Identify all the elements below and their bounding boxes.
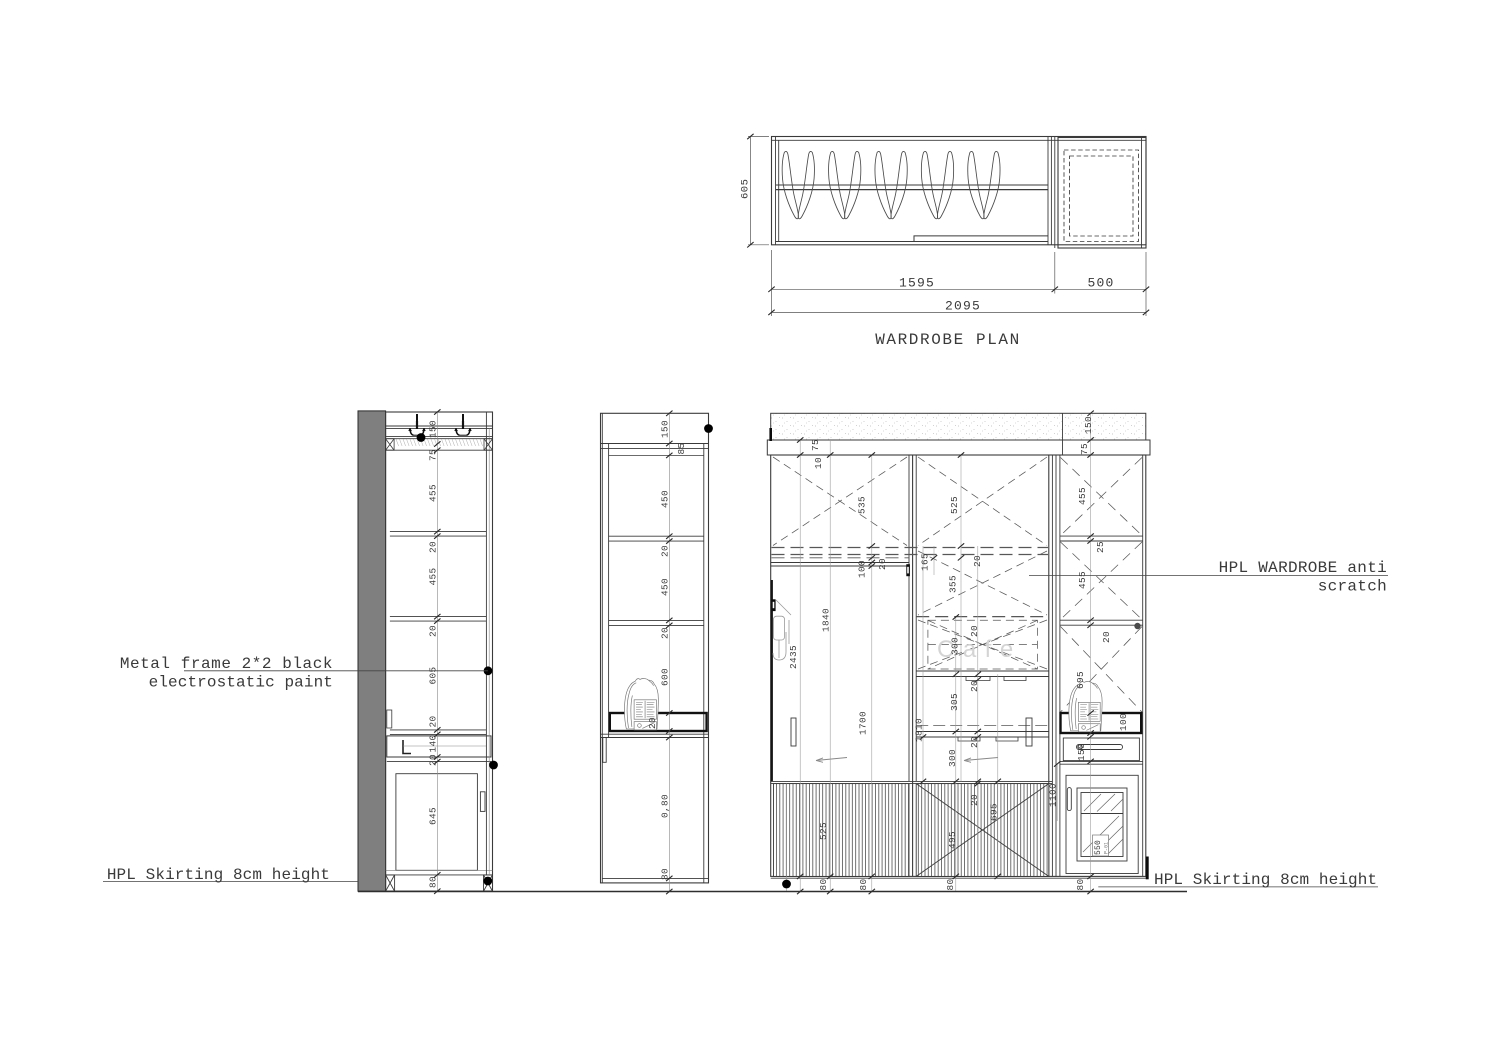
svg-text:20: 20 [972,555,983,567]
svg-text:WARDROBE PLAN: WARDROBE PLAN [875,331,1021,349]
svg-text:0,80: 0,80 [660,794,671,818]
svg-text:85: 85 [676,443,687,455]
svg-text:695: 695 [1075,671,1086,689]
svg-text:HPL Skirting 8cm height: HPL Skirting 8cm height [1154,871,1377,889]
svg-text:645: 645 [428,807,439,825]
svg-text:695: 695 [989,803,1000,821]
svg-text:80: 80 [428,876,439,888]
svg-text:150: 150 [660,420,671,438]
svg-text:scratch: scratch [1318,578,1387,596]
svg-text:495: 495 [947,831,958,849]
svg-text:300: 300 [950,637,961,655]
svg-text:2095: 2095 [945,299,981,314]
svg-text:140: 140 [428,735,439,753]
svg-text:25: 25 [1095,541,1106,553]
svg-text:165: 165 [920,553,931,571]
svg-text:525: 525 [949,496,960,514]
svg-text:electrostatic paint: electrostatic paint [149,674,333,692]
svg-text:20: 20 [660,627,671,639]
svg-text:1595: 1595 [899,276,935,291]
svg-text:525: 525 [818,822,829,840]
svg-text:80: 80 [818,879,829,891]
svg-text:1100: 1100 [1048,783,1059,807]
svg-text:455: 455 [428,568,439,586]
svg-text:Metal frame 2*2 black: Metal frame 2*2 black [120,655,333,673]
svg-text:20: 20 [428,716,439,728]
svg-text:150: 150 [1076,743,1087,761]
svg-text:2435: 2435 [788,645,799,669]
svg-text:20: 20 [969,625,980,637]
svg-text:305: 305 [949,693,960,711]
svg-text:20: 20 [428,754,439,766]
svg-text:10: 10 [813,457,824,469]
svg-text:20: 20 [647,717,658,729]
svg-text:100: 100 [1118,713,1129,731]
svg-text:20: 20 [428,541,439,553]
svg-text:605: 605 [740,179,752,199]
svg-text:100: 100 [857,560,868,578]
svg-text:20: 20 [877,558,888,570]
svg-text:500: 500 [1087,276,1114,291]
svg-text:P-01: P-01 [1104,842,1110,854]
svg-text:80: 80 [660,868,671,880]
svg-text:75: 75 [428,449,439,461]
svg-text:550: 550 [1094,840,1103,855]
svg-text:150: 150 [428,420,439,438]
svg-text:455: 455 [1077,487,1088,505]
svg-text:20: 20 [660,545,671,557]
svg-text:1810: 1810 [914,718,925,742]
svg-text:80: 80 [1075,879,1086,891]
svg-text:80: 80 [945,879,956,891]
svg-text:535: 535 [857,496,868,514]
svg-text:450: 450 [660,490,671,508]
svg-text:605: 605 [428,667,439,685]
svg-text:20: 20 [969,794,980,806]
svg-text:600: 600 [660,668,671,686]
svg-text:450: 450 [660,578,671,596]
svg-text:80: 80 [858,879,869,891]
svg-text:20: 20 [428,625,439,637]
svg-text:300: 300 [947,749,958,767]
svg-text:455: 455 [428,484,439,502]
svg-text:75: 75 [810,439,821,451]
svg-text:1840: 1840 [821,608,832,632]
svg-text:75: 75 [1079,443,1090,455]
svg-text:20: 20 [969,736,980,748]
svg-text:HPL WARDROBE anti: HPL WARDROBE anti [1219,559,1387,577]
svg-text:355: 355 [948,575,959,593]
svg-text:150: 150 [1083,416,1094,434]
svg-text:20: 20 [1101,631,1112,643]
svg-text:1700: 1700 [858,711,869,735]
svg-text:455: 455 [1077,571,1088,589]
svg-text:20: 20 [969,680,980,692]
